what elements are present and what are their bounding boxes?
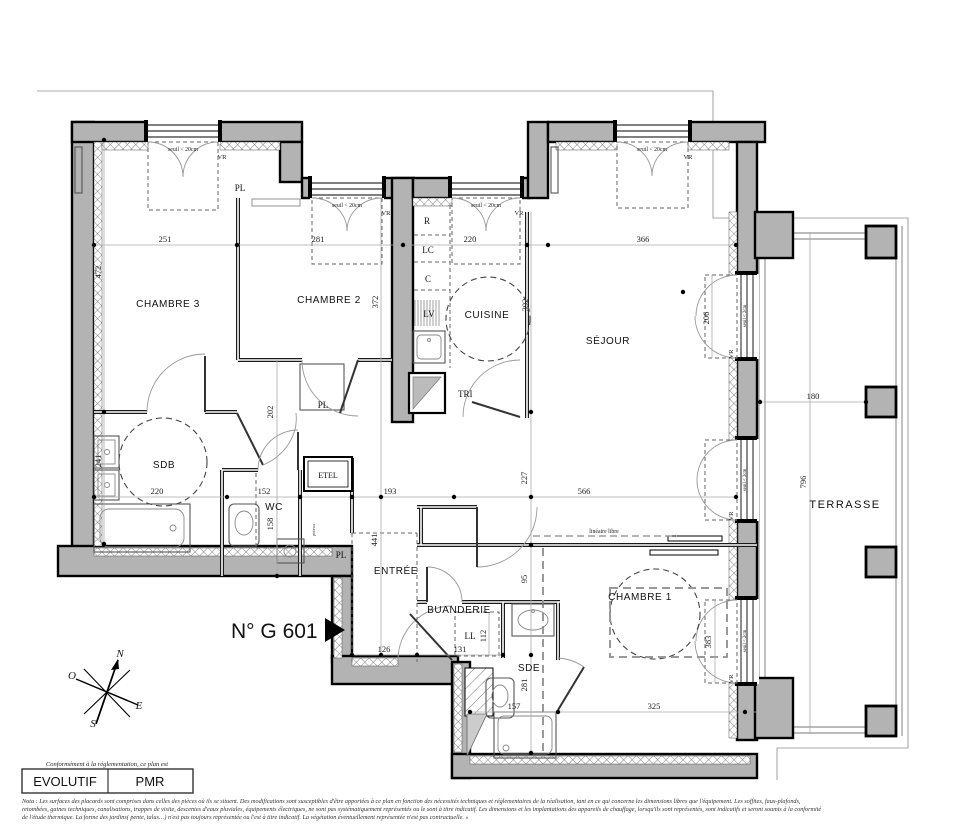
- dim-193: 193: [384, 486, 397, 496]
- dim-180: 180: [807, 391, 820, 401]
- dim-281b: 281: [519, 679, 529, 692]
- nota-line-3: de l'étude thermique. La forme des jardi…: [22, 814, 469, 821]
- seuil-annotation: seuil < 20cm: [637, 147, 667, 153]
- pmr-circle-chambre1: [610, 569, 700, 659]
- dim-158: 158: [265, 518, 275, 531]
- dim-383: 383: [703, 636, 713, 649]
- dim-152: 152: [258, 486, 271, 496]
- room-label-sde: SDE: [518, 663, 540, 674]
- seuil-annotation: seuil < 20cm: [332, 203, 362, 209]
- dim-566: 566: [578, 486, 591, 496]
- vr-annotation: VR: [683, 154, 693, 161]
- tag-tri: TRI: [458, 389, 473, 399]
- compass-o: O: [68, 670, 76, 682]
- room-label-chambre1: CHAMBRE 1: [608, 592, 672, 603]
- room-label-wc: WC: [265, 502, 283, 513]
- legend-evolutif: EVOLUTIF: [33, 774, 97, 789]
- nota-line-1: Nota : Les surfaces des placards sont co…: [21, 798, 801, 805]
- dim-472: 472: [93, 266, 103, 279]
- tag-etel: ETEL: [318, 471, 338, 480]
- room-label-terrasse: TERRASSE: [809, 499, 880, 511]
- dim-131: 131: [454, 644, 467, 654]
- dim-95: 95: [519, 575, 529, 584]
- dim-366: 366: [637, 234, 650, 244]
- room-label-sejour: SÉJOUR: [586, 334, 630, 347]
- dim-281: 281: [312, 234, 325, 244]
- dim-325: 325: [648, 701, 661, 711]
- terrasse-pillar: [866, 706, 896, 736]
- tag-pl: PL: [235, 183, 246, 193]
- tag-refrigerator: R: [424, 216, 430, 226]
- dim-220b: 220: [151, 486, 164, 496]
- room-label-chambre3: CHAMBRE 3: [136, 299, 200, 310]
- room-label-chambre2: CHAMBRE 2: [297, 295, 361, 306]
- room-label-sdb: SDB: [153, 460, 175, 471]
- vr-annotation: VR: [728, 511, 735, 521]
- vr-annotation: VR: [514, 210, 524, 217]
- compass-e: E: [135, 700, 143, 712]
- dim-441: 441: [369, 534, 379, 547]
- terrasse-pillar: [866, 387, 896, 417]
- seuil-annotation: seuil < 2cm: [743, 305, 748, 328]
- floor-plan-sheet: CHAMBRE 3 CHAMBRE 2 CUISINE SÉJOUR SDB W…: [0, 0, 961, 832]
- dim-241: 241: [93, 455, 103, 468]
- tag-washer: LL: [465, 631, 476, 641]
- dim-220: 220: [464, 234, 477, 244]
- seuil-annotation: seuil < 2cm: [743, 630, 748, 653]
- tag-pl: PL: [336, 550, 347, 560]
- terrasse-pillar: [866, 547, 896, 577]
- unit-number: N° G 601: [231, 618, 345, 643]
- compass-north-needle: [111, 659, 119, 670]
- dim-206: 206: [701, 312, 711, 325]
- room-label-cuisine: CUISINE: [465, 310, 510, 321]
- dim-251: 251: [159, 234, 172, 244]
- dim-227: 227: [519, 472, 529, 485]
- shelf: [252, 199, 300, 206]
- interior-partitions: [94, 198, 757, 660]
- compass-n: N: [115, 648, 124, 660]
- tag-lc: LC: [422, 245, 434, 255]
- shower-screen: [467, 714, 487, 756]
- kitchen-sink: [413, 331, 445, 363]
- room-label-buanderie: BUANDERIE: [427, 605, 491, 616]
- compass-rose: N O E S: [68, 648, 143, 730]
- vr-annotation: VR: [728, 349, 735, 359]
- dim-372: 372: [370, 296, 380, 309]
- sliding-door-panel: [650, 550, 718, 555]
- dim-392: 392: [520, 299, 530, 312]
- seuil-annotation: seuil < 2cm: [743, 469, 748, 492]
- seuil-annotation: seuil < 20cm: [168, 147, 198, 153]
- radiator: [551, 147, 558, 193]
- dim-796: 796: [798, 476, 808, 489]
- lineaire-libre-label: linéaire libre: [589, 529, 619, 535]
- unit-number-label: N° G 601: [231, 620, 318, 643]
- nota-line-2: retombées, gaines techniques, canalisati…: [22, 806, 821, 813]
- sliding-door-panel: [668, 536, 722, 541]
- tag-dishwasher: LV: [423, 309, 435, 319]
- terrasse-structure: [759, 226, 902, 736]
- terrasse-pillar: [866, 226, 896, 258]
- dim-112: 112: [478, 630, 488, 642]
- compass-s: S: [90, 718, 96, 730]
- vr-annotation: VR: [728, 674, 735, 684]
- seuil-annotation: seuil < 20cm: [471, 203, 501, 209]
- conformity-text: Conformément à la réglementation, ce pla…: [46, 761, 168, 768]
- tag-poteau: poteau: [311, 523, 316, 536]
- shower-tray: [494, 712, 556, 758]
- wc-toilet: [229, 504, 259, 546]
- tag-pl: PL: [318, 400, 329, 410]
- room-label-entree: ENTRÉE: [374, 564, 418, 577]
- legend-pmr: PMR: [136, 774, 165, 789]
- tag-c: C: [425, 274, 431, 284]
- technical-duct-hatch: [465, 668, 493, 716]
- dim-126: 126: [378, 644, 391, 654]
- dim-157: 157: [508, 701, 521, 711]
- vr-annotation: VR: [381, 210, 391, 217]
- dim-202: 202: [265, 406, 275, 419]
- vr-annotation: VR: [217, 154, 227, 161]
